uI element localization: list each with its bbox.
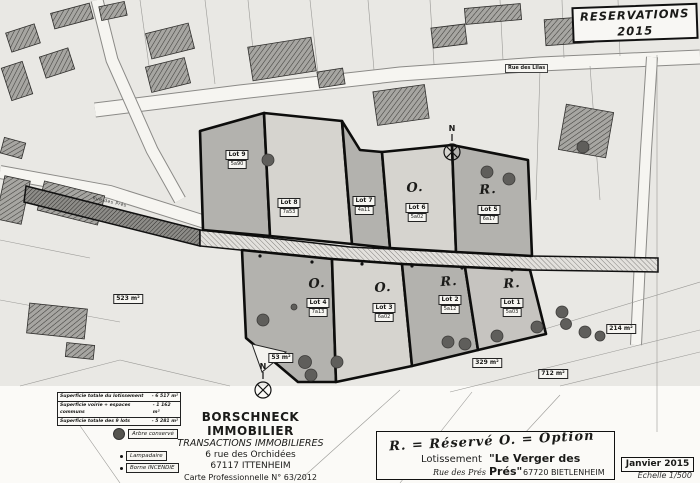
lot8-area: 7a53 <box>280 208 299 217</box>
lot2-area: 5a12 <box>441 305 460 314</box>
lot3-label: Lot 3 <box>372 303 395 313</box>
area-label-214: 214 m² <box>606 324 636 334</box>
lot2-label: Lot 2 <box>438 295 461 305</box>
lot5-area: 6a17 <box>480 215 499 224</box>
lot5-reservation-mark: R. <box>479 182 497 198</box>
company-city: 67117 ITTENHEIM <box>168 461 333 472</box>
summary-row-lots: Superficie totale des 9 lots - 5 281 m² <box>58 418 180 426</box>
hydrant-dot-icon <box>120 467 123 470</box>
area-label-53: 53 m² <box>268 353 293 363</box>
lot7-label: Lot 7 <box>352 196 375 206</box>
summary-row-total: Superficie totale du lotissement - 6 517… <box>58 393 180 402</box>
lot4-reservation-mark: O. <box>308 276 326 292</box>
lot8-label: Lot 8 <box>277 198 300 208</box>
summary-row-voirie: Superficie voirie + espaces communs - 1 … <box>58 402 180 418</box>
lotissement-word: Lotissement <box>421 454 482 465</box>
compass-n-lower: N <box>260 362 267 371</box>
title-block: R. = Réservé O. = Option Lotissement "Le… <box>376 431 615 480</box>
tree-icon <box>113 428 125 440</box>
company-name: BORSCHNECK IMMOBILIER <box>168 410 333 438</box>
company-block: BORSCHNECK IMMOBILIER TRANSACTIONS IMMOB… <box>168 410 333 483</box>
lot6-reservation-mark: O. <box>406 180 424 196</box>
area-label-712: 712 m² <box>538 369 568 379</box>
compass-n-upper: N <box>449 124 456 133</box>
lot4-area: 7a13 <box>309 308 328 317</box>
lot6-parcel <box>382 145 456 252</box>
lot9-parcel <box>200 113 270 236</box>
summary-label: Superficie totale du lotissement <box>60 393 143 401</box>
lotissement-city: 67720 BIETLENHEIM <box>523 468 605 477</box>
lot1-reservation-mark: R. <box>503 276 521 292</box>
lot8-parcel <box>264 113 352 244</box>
lot6-area: 5a02 <box>408 213 427 222</box>
lot7-area: 4a11 <box>355 206 374 215</box>
date-box: Janvier 2015 <box>621 457 694 472</box>
lot6-label: Lot 6 <box>405 203 428 213</box>
lot9-label: Lot 9 <box>225 150 248 160</box>
summary-label: Superficie totale des 9 lots <box>60 418 130 426</box>
scale-label: Echelle 1/500 <box>626 471 692 480</box>
company-carte: Carte Professionnelle N° 63/2012 <box>168 472 333 483</box>
company-type: TRANSACTIONS IMMOBILIERES <box>168 438 333 450</box>
lot4-label: Lot 4 <box>306 298 329 308</box>
lot1-label: Lot 1 <box>500 298 523 308</box>
reservation-key-note: R. = Réservé O. = Option <box>389 429 595 455</box>
lot2-reservation-mark: R. <box>440 274 458 290</box>
lot3-parcel <box>332 259 412 382</box>
area-label-523: 523 m² <box>113 294 143 304</box>
legend-lampadaire: Lampadaire <box>120 451 167 461</box>
summary-label: Superficie voirie + espaces communs <box>60 402 153 417</box>
lot3-area: 6a02 <box>375 313 394 322</box>
company-address: 6 rue des Orchidées <box>168 450 333 461</box>
lot1-area: 5a03 <box>503 308 522 317</box>
lot5-label: Lot 5 <box>477 205 500 215</box>
surface-summary-table: Superficie totale du lotissement - 6 517… <box>57 392 181 426</box>
street-label-rue-des-lilas: Rue des Lilas <box>505 64 548 73</box>
lot5-parcel <box>452 145 532 256</box>
reservations-stamp: RESERVATIONS 2015 <box>571 3 698 43</box>
lotissement-street: Rue des Prés <box>433 468 486 477</box>
area-label-329: 329 m² <box>472 358 502 368</box>
site-plan-page: RESERVATIONS 2015 Rue des Lilas Rue des … <box>0 0 700 483</box>
lot9-area: 5a90 <box>228 160 247 169</box>
summary-value: - 6 517 m² <box>152 393 178 401</box>
lamp-dot-icon <box>120 455 123 458</box>
legend-lampadaire-label: Lampadaire <box>126 451 167 461</box>
lot3-reservation-mark: O. <box>374 280 392 296</box>
